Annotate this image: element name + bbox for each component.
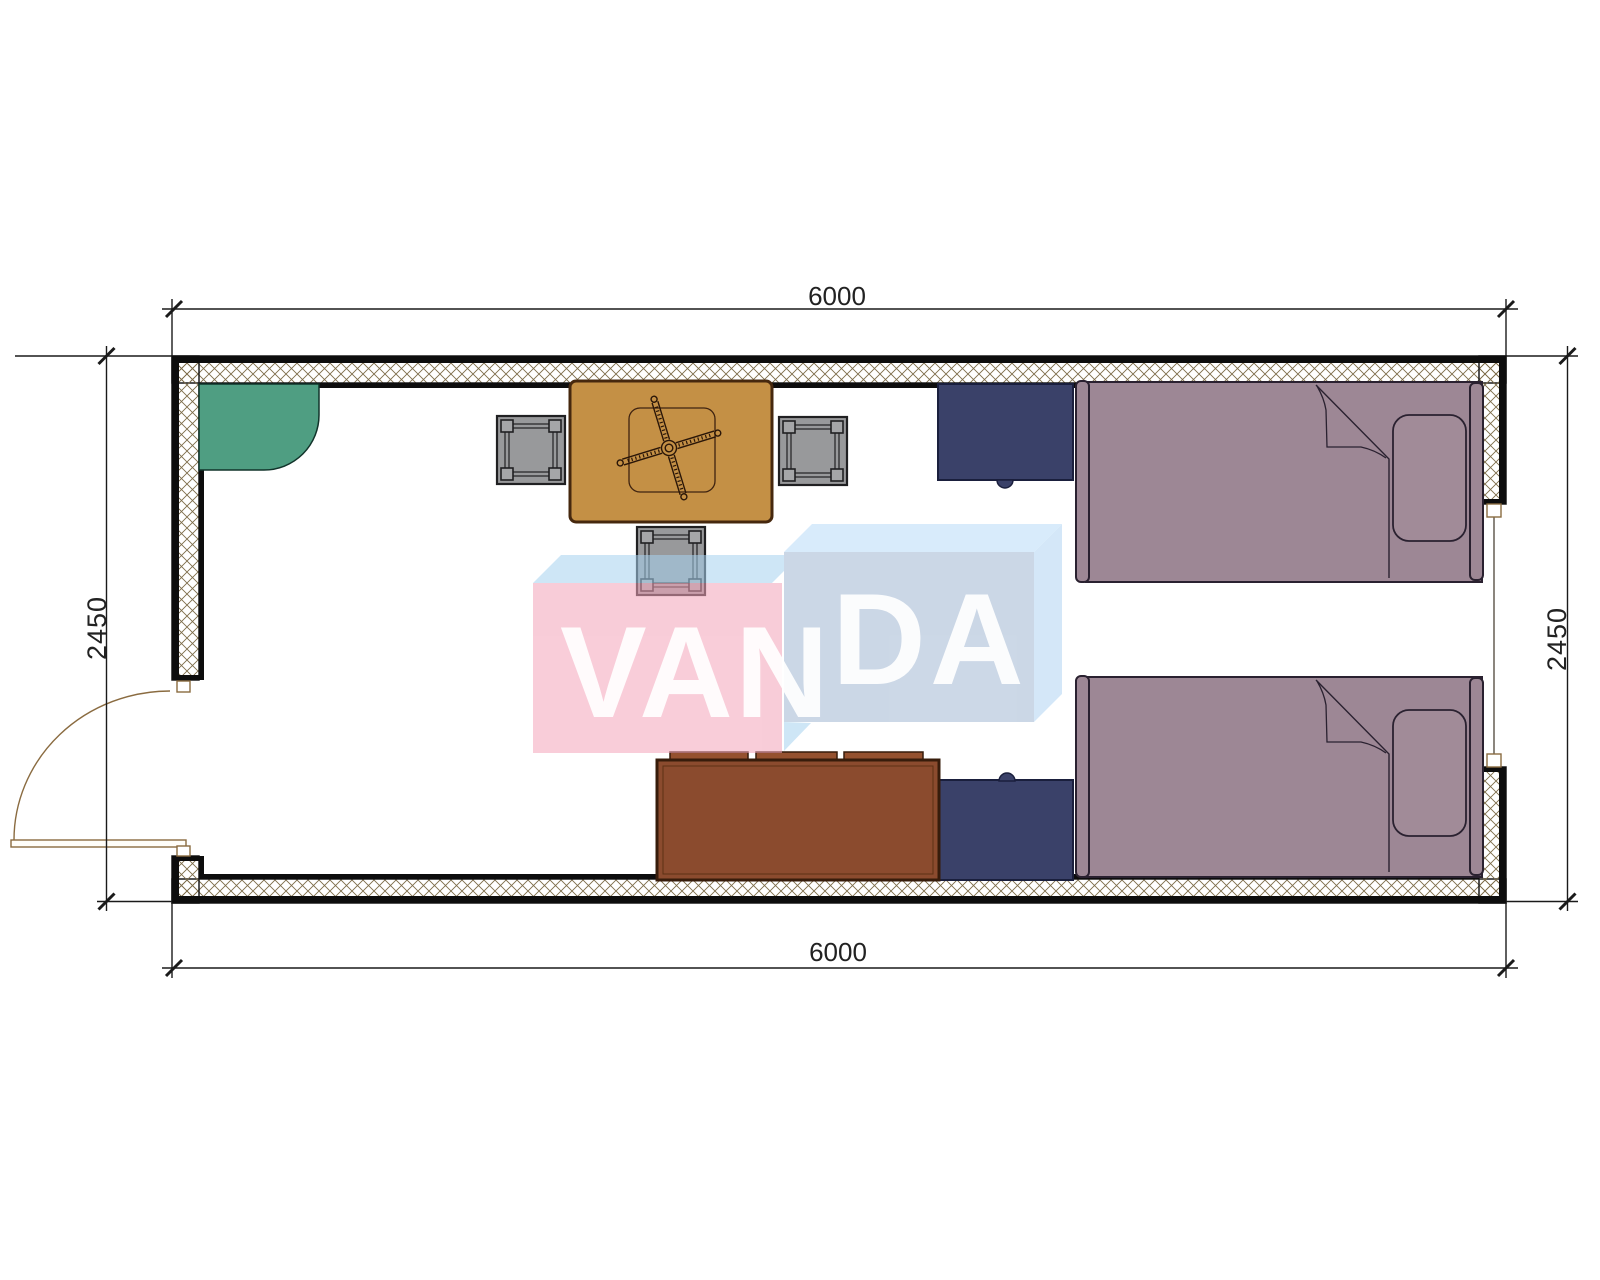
svg-text:DA: DA — [832, 566, 1028, 712]
svg-text:2450: 2450 — [1542, 607, 1572, 671]
svg-text:6000: 6000 — [808, 281, 866, 311]
svg-text:VAN: VAN — [560, 599, 831, 745]
svg-text:2450: 2450 — [82, 596, 112, 660]
svg-text:6000: 6000 — [809, 937, 867, 967]
